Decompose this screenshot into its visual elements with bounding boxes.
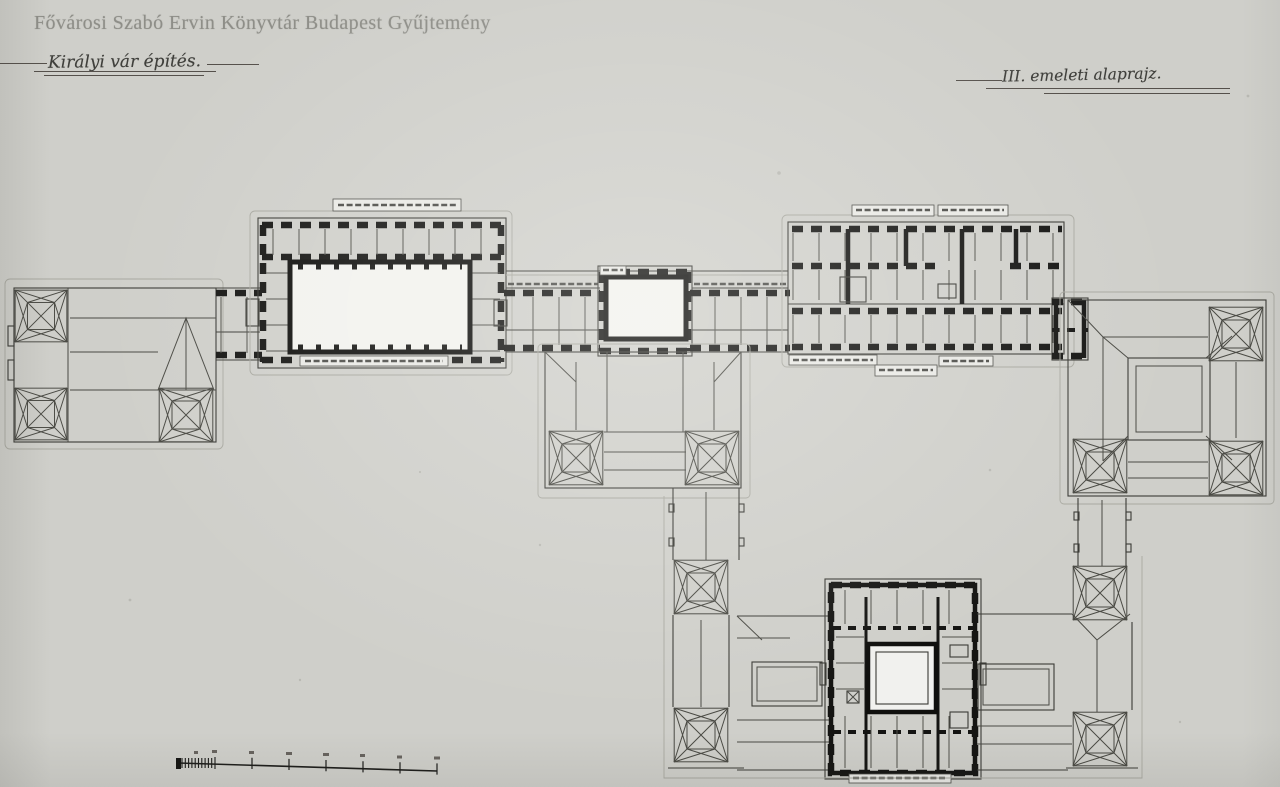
east-block: [782, 205, 1088, 376]
scanned-floor-plan-page: Fővárosi Szabó Ervin Könyvtár Budapest G…: [0, 0, 1280, 787]
wing-segment-west: [216, 288, 262, 360]
tower-roof: [674, 560, 728, 614]
roof-band-southwest: [737, 616, 832, 770]
grand-hall: [290, 262, 470, 352]
central-block: [250, 199, 512, 375]
middle-hall: [606, 277, 686, 339]
south-central-block: [820, 579, 986, 783]
roof-pavilion-south-center: [538, 344, 750, 498]
roof-band-southeast: [977, 498, 1138, 770]
tower-roof: [685, 431, 739, 485]
tower-roof: [15, 388, 67, 440]
tower-roof: [674, 708, 728, 762]
tower-roof: [1073, 566, 1127, 620]
tower-roof: [1073, 439, 1127, 493]
roof-pavilion-right: [1060, 292, 1274, 504]
paper-specks: [129, 95, 1250, 724]
tower-roof: [549, 431, 603, 485]
middle-hall-block: [598, 266, 692, 356]
tower-roof: [159, 388, 213, 442]
light-court: [752, 662, 822, 706]
wing-segment-center-east: [690, 284, 790, 352]
floor-plan-drawing: [0, 0, 1280, 787]
tower-roof: [1209, 307, 1263, 361]
tower-roof: [15, 290, 67, 342]
tower-roof: [1209, 441, 1263, 495]
scale-bar-origin: [176, 758, 181, 769]
scale-bar-numerals: [194, 750, 440, 760]
tower-roof: [1073, 712, 1127, 766]
light-court: [978, 664, 1054, 710]
roof-pavilion-left: [5, 279, 223, 449]
scale-bar: [176, 750, 440, 775]
inner-courtyard: [868, 644, 936, 712]
courtyard-wing-west: [668, 488, 744, 768]
